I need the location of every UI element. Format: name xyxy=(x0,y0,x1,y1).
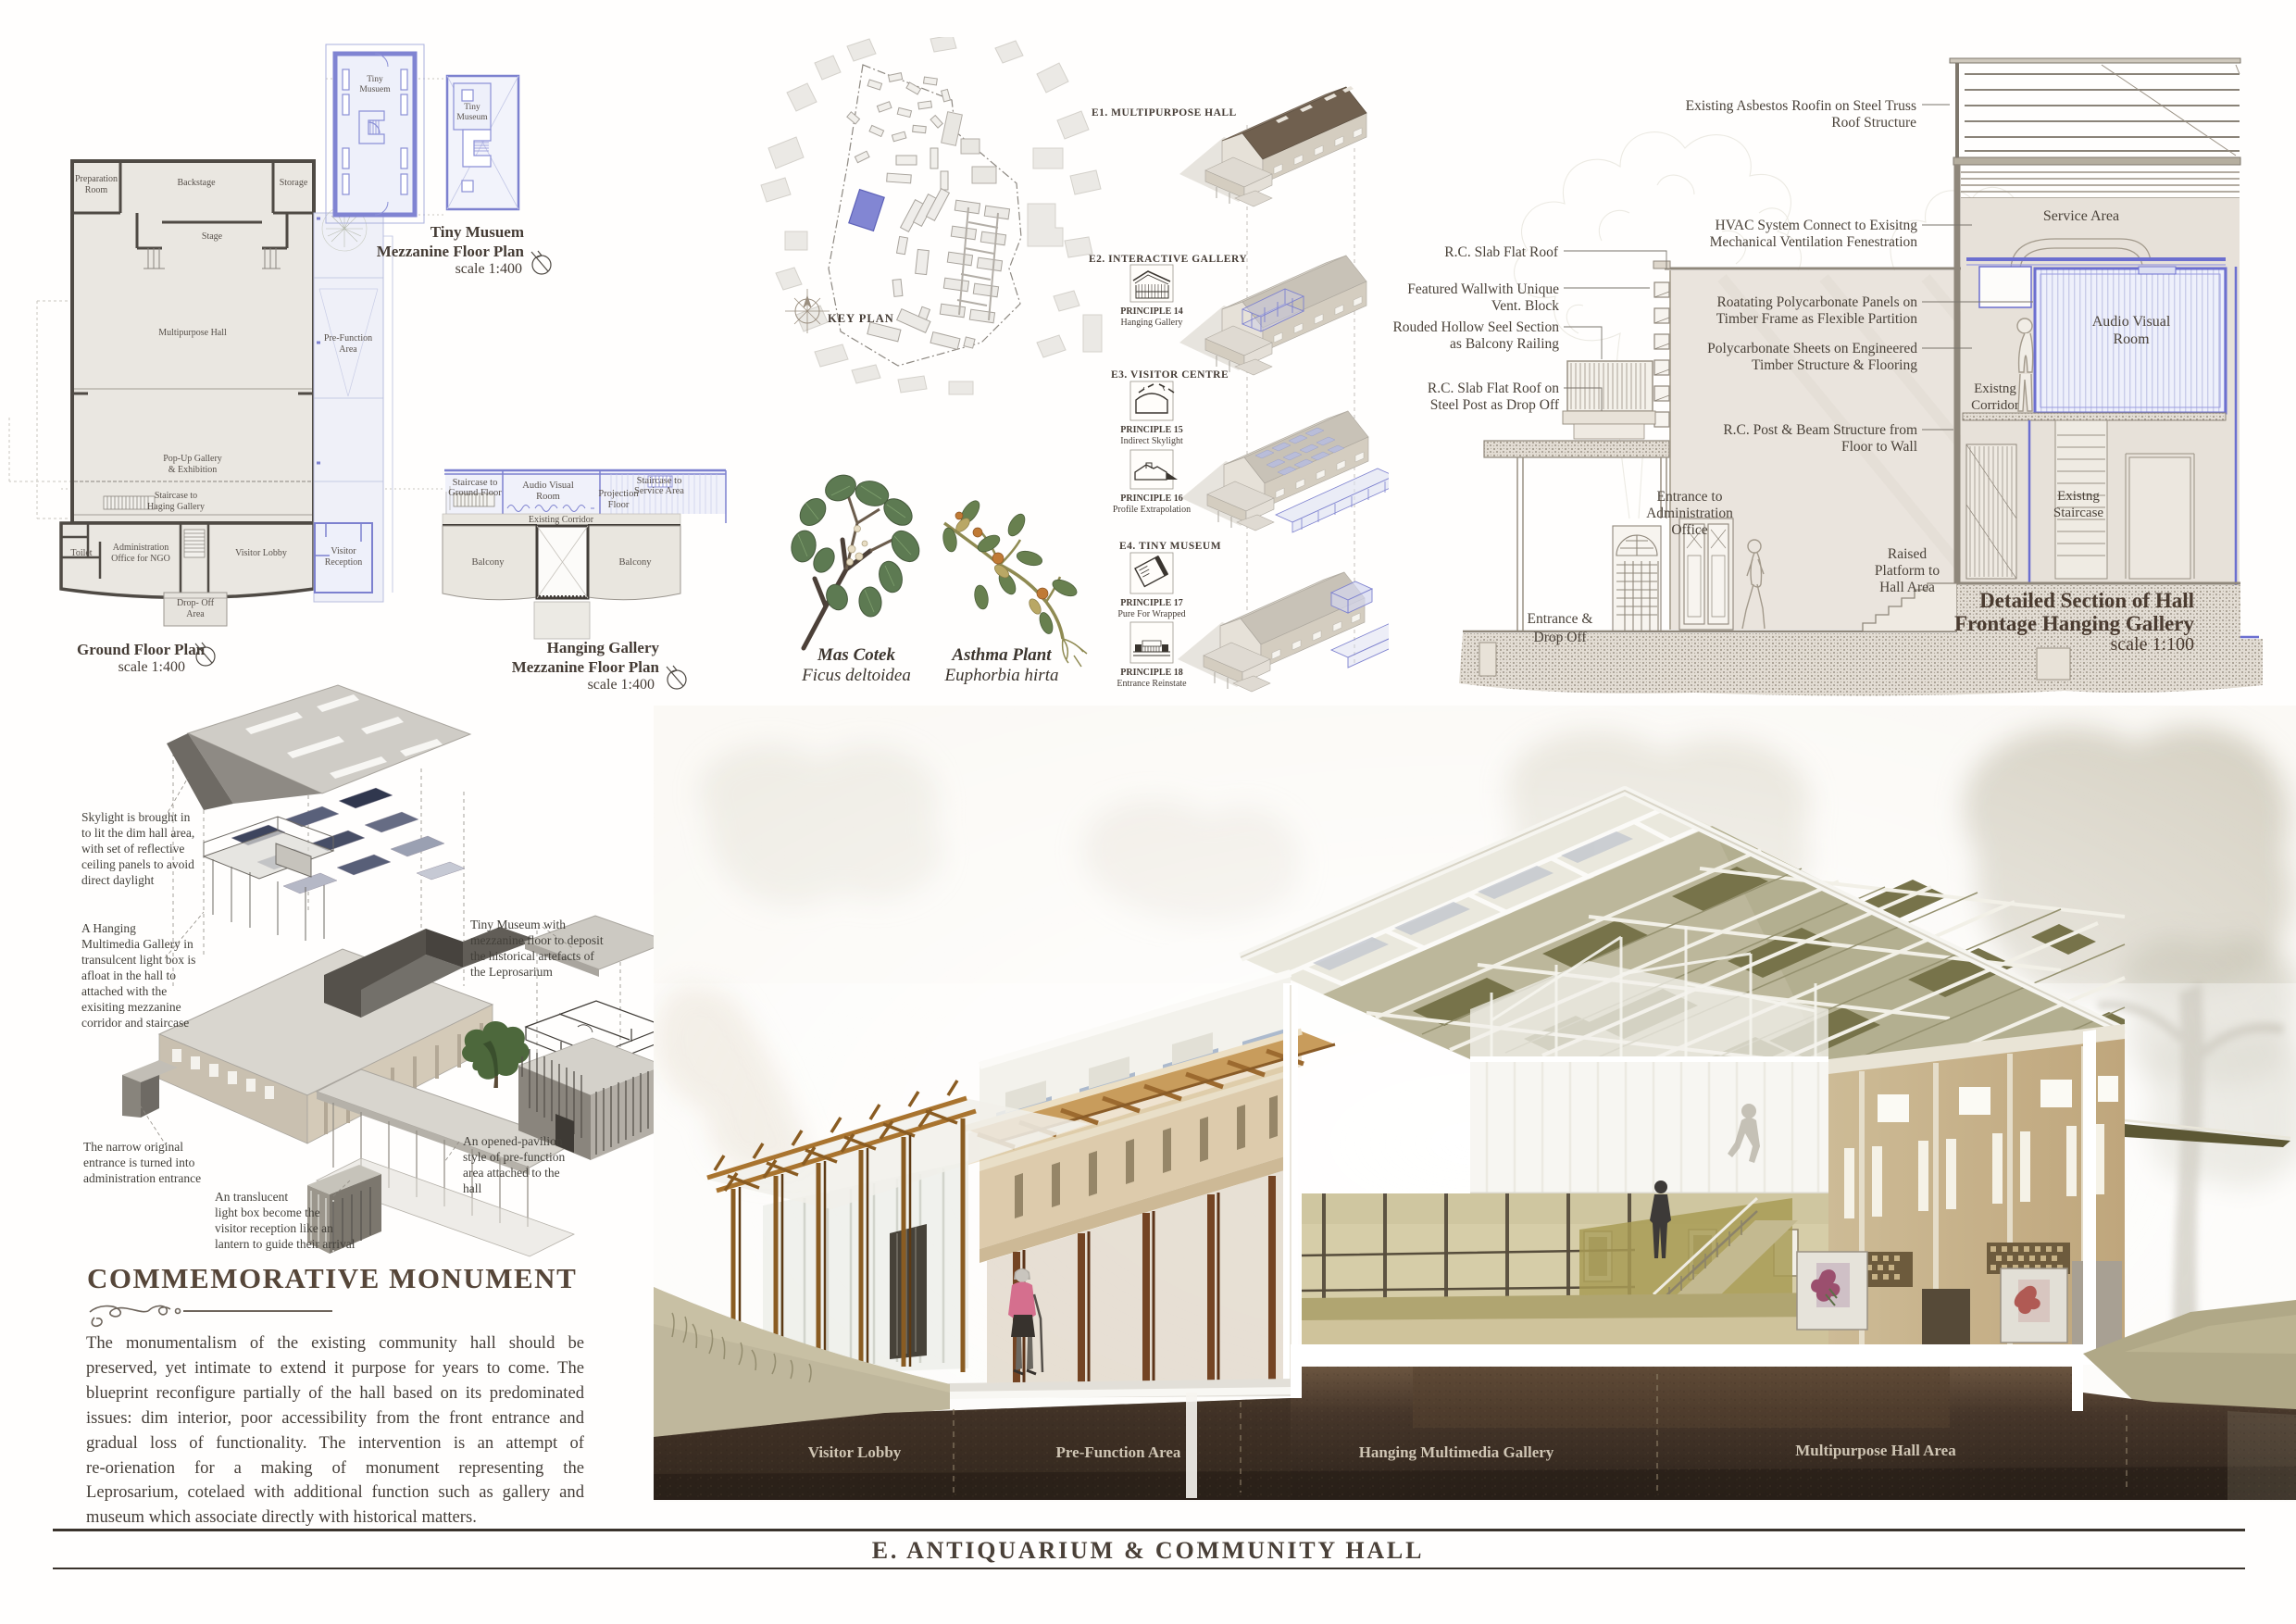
svg-text:Timber Frame as Flexible Parti: Timber Frame as Flexible Partition xyxy=(1716,311,1918,327)
svg-text:Multipurpose Hall: Multipurpose Hall xyxy=(158,328,227,338)
svg-text:Staircase to: Staircase to xyxy=(637,476,682,486)
svg-text:Multipurpose Hall Area: Multipurpose Hall Area xyxy=(1795,1442,1956,1459)
svg-text:Room: Room xyxy=(2113,331,2150,347)
svg-text:Hanging Multimedia Gallery: Hanging Multimedia Gallery xyxy=(1359,1443,1554,1461)
svg-text:Floor: Floor xyxy=(608,500,630,510)
svg-text:Indirect Skylight: Indirect Skylight xyxy=(1120,436,1183,446)
svg-text:Polycarbonate Sheets on Engine: Polycarbonate Sheets on Engineered xyxy=(1707,341,1917,356)
svg-text:scale 1:100: scale 1:100 xyxy=(2110,634,2194,655)
svg-text:Service Area: Service Area xyxy=(634,486,684,496)
svg-text:Mas Cotek: Mas Cotek xyxy=(817,645,895,665)
svg-text:Drop- Off: Drop- Off xyxy=(177,598,215,608)
svg-text:Entrance Reinstate: Entrance Reinstate xyxy=(1117,679,1187,689)
svg-text:Hanging Gallery: Hanging Gallery xyxy=(1121,318,1183,328)
svg-text:An translucent: An translucent xyxy=(215,1190,288,1204)
svg-text:Visitor Lobby: Visitor Lobby xyxy=(808,1443,902,1461)
svg-text:Hall Area: Hall Area xyxy=(1879,580,1935,595)
svg-text:to lit the dim hall area,: to lit the dim hall area, xyxy=(81,826,194,840)
svg-text:& Exhibition: & Exhibition xyxy=(168,465,218,475)
svg-text:Musuem: Musuem xyxy=(359,85,391,94)
svg-text:R.C. Post & Beam Structure fro: R.C. Post & Beam Structure from xyxy=(1723,422,1917,438)
svg-text:Featured Wallwith Unique: Featured Wallwith Unique xyxy=(1407,281,1559,297)
svg-text:Vent. Block: Vent. Block xyxy=(1491,298,1559,314)
svg-text:Euphorbia hirta: Euphorbia hirta xyxy=(944,666,1059,685)
svg-text:Area: Area xyxy=(186,609,205,619)
svg-text:Corridor: Corridor xyxy=(1971,398,2019,413)
svg-text:Visitor: Visitor xyxy=(331,546,356,556)
svg-text:Skylight is brought in: Skylight is brought in xyxy=(81,810,191,824)
svg-text:scale 1:400: scale 1:400 xyxy=(455,261,522,277)
svg-text:Audio Visual: Audio Visual xyxy=(2092,314,2171,330)
svg-text:the Leprosarium: the Leprosarium xyxy=(470,965,553,979)
svg-text:Toilet: Toilet xyxy=(70,548,92,558)
svg-text:lantern to guide their arrival: lantern to guide their arrival xyxy=(215,1237,356,1251)
svg-text:R.C. Slab Flat Roof: R.C. Slab Flat Roof xyxy=(1444,244,1559,260)
svg-text:Asthma Plant: Asthma Plant xyxy=(951,645,1052,665)
svg-text:Platform to: Platform to xyxy=(1875,563,1940,579)
svg-text:Pre-Function Area: Pre-Function Area xyxy=(1056,1443,1181,1461)
svg-text:PRINCIPLE 14: PRINCIPLE 14 xyxy=(1120,306,1183,317)
svg-text:Detailed Section of Hall: Detailed Section of Hall xyxy=(1979,589,2194,612)
svg-text:area attached to the: area attached to the xyxy=(463,1166,560,1180)
svg-text:An opened-pavilion: An opened-pavilion xyxy=(463,1134,563,1148)
svg-text:Tiny: Tiny xyxy=(464,103,480,112)
svg-text:Balcony: Balcony xyxy=(619,557,653,568)
svg-text:Visitor Lobby: Visitor Lobby xyxy=(235,548,287,558)
svg-text:Ground Floor Plan: Ground Floor Plan xyxy=(77,641,206,658)
svg-text:Timber Structure & Flooring: Timber Structure & Flooring xyxy=(1752,357,1917,373)
svg-text:Raised: Raised xyxy=(1888,546,1927,562)
svg-text:as Balcony Railing: as Balcony Railing xyxy=(1450,336,1559,352)
svg-text:Roof Structure: Roof Structure xyxy=(1831,115,1916,131)
svg-text:hall: hall xyxy=(463,1181,481,1195)
svg-text:E4. TINY MUSEUM: E4. TINY MUSEUM xyxy=(1119,541,1221,552)
svg-text:Frontage Hanging Gallery: Frontage Hanging Gallery xyxy=(1954,612,2194,635)
svg-text:Backstage: Backstage xyxy=(177,178,216,188)
svg-text:Preparation: Preparation xyxy=(75,174,118,184)
svg-text:exisiting mezzanine: exisiting mezzanine xyxy=(81,1000,181,1014)
svg-text:style of pre-function: style of pre-function xyxy=(463,1150,565,1164)
svg-text:Profile Extrapolation: Profile Extrapolation xyxy=(1113,505,1191,515)
svg-text:Stage: Stage xyxy=(202,231,223,242)
svg-text:E1. MULTIPURPOSE HALL: E1. MULTIPURPOSE HALL xyxy=(1092,107,1237,119)
svg-text:corridor and staircase: corridor and staircase xyxy=(81,1016,189,1030)
svg-text:Room: Room xyxy=(85,185,108,195)
svg-text:Tiny Museum with: Tiny Museum with xyxy=(470,918,566,931)
svg-text:Balcony: Balcony xyxy=(472,557,505,568)
svg-text:Existng: Existng xyxy=(2057,489,2100,504)
svg-text:Ficus deltoidea: Ficus deltoidea xyxy=(801,666,911,685)
svg-text:E2. INTERACTIVE GALLERY: E2. INTERACTIVE GALLERY xyxy=(1089,254,1247,265)
svg-text:with set of reflective: with set of reflective xyxy=(81,842,184,856)
svg-text:visitor reception like an: visitor reception like an xyxy=(215,1221,333,1235)
svg-text:attached with the: attached with the xyxy=(81,984,167,998)
svg-text:Area: Area xyxy=(339,344,357,355)
svg-text:The narrow original: The narrow original xyxy=(83,1140,183,1154)
svg-text:HVAC System Connect to Exisitn: HVAC System Connect to Exisitng xyxy=(1716,218,1918,233)
svg-text:Tiny: Tiny xyxy=(367,75,383,84)
svg-text:E3. VISITOR CENTRE: E3. VISITOR CENTRE xyxy=(1111,369,1229,381)
svg-text:KEY PLAN: KEY PLAN xyxy=(828,312,894,325)
svg-text:administration entrance: administration entrance xyxy=(83,1171,201,1185)
svg-text:R.C. Slab Flat Roof on: R.C. Slab Flat Roof on xyxy=(1428,381,1559,396)
svg-text:Staircase to: Staircase to xyxy=(155,491,197,501)
svg-text:A Hanging: A Hanging xyxy=(81,921,136,935)
svg-text:mezzanine floor to deposit: mezzanine floor to deposit xyxy=(470,933,604,947)
svg-text:Administration: Administration xyxy=(1646,506,1733,521)
svg-text:Audio Visual: Audio Visual xyxy=(522,481,574,491)
svg-text:entrance is turned into: entrance is turned into xyxy=(83,1156,195,1169)
svg-text:afloat in the hall to: afloat in the hall to xyxy=(81,968,176,982)
svg-text:Entrance &: Entrance & xyxy=(1527,611,1592,627)
svg-text:Office: Office xyxy=(1671,522,1707,538)
svg-text:Staircase to: Staircase to xyxy=(453,478,498,488)
svg-text:Existing Asbestos Roofin on St: Existing Asbestos Roofin on Steel Truss xyxy=(1686,98,1916,114)
svg-text:Haging Gallery: Haging Gallery xyxy=(147,502,205,512)
svg-text:Projection: Projection xyxy=(598,489,639,499)
svg-text:Floor to Wall: Floor to Wall xyxy=(1841,439,1917,455)
svg-text:Steel Post as Drop Off: Steel Post as Drop Off xyxy=(1430,397,1560,413)
svg-text:Museum: Museum xyxy=(456,113,488,122)
svg-text:Reception: Reception xyxy=(325,557,363,568)
svg-text:Multimedia Gallery in: Multimedia Gallery in xyxy=(81,937,193,951)
svg-text:Existng: Existng xyxy=(1974,381,2016,396)
svg-text:PRINCIPLE 16: PRINCIPLE 16 xyxy=(1120,493,1183,504)
svg-text:Ground Floor: Ground Floor xyxy=(448,488,502,498)
svg-text:Existing Corridor: Existing Corridor xyxy=(529,515,594,525)
svg-text:transulcent light box is: transulcent light box is xyxy=(81,953,195,967)
svg-text:PRINCIPLE 17: PRINCIPLE 17 xyxy=(1120,598,1183,608)
svg-text:Rouded Hollow Seel Section: Rouded Hollow Seel Section xyxy=(1392,319,1559,335)
svg-text:Office for NGO: Office for NGO xyxy=(111,554,170,564)
svg-text:direct daylight: direct daylight xyxy=(81,873,155,887)
svg-text:Entrance to: Entrance to xyxy=(1656,489,1722,505)
svg-text:Mezzanine Floor Plan: Mezzanine Floor Plan xyxy=(377,243,525,260)
svg-text:Storage: Storage xyxy=(280,178,308,188)
svg-text:Pre-Function: Pre-Function xyxy=(324,333,372,344)
svg-text:Pure For Wrapped: Pure For Wrapped xyxy=(1117,609,1185,619)
svg-text:the historical artefacts of: the historical artefacts of xyxy=(470,949,594,963)
svg-text:Hanging Gallery: Hanging Gallery xyxy=(547,639,660,656)
svg-text:Administration: Administration xyxy=(113,543,169,553)
svg-text:scale 1:400: scale 1:400 xyxy=(119,659,185,675)
svg-text:Drop Off: Drop Off xyxy=(1534,630,1588,645)
svg-text:Roatating Polycarbonate Panels: Roatating Polycarbonate Panels on xyxy=(1716,294,1917,310)
svg-text:Mezzanine Floor Plan: Mezzanine Floor Plan xyxy=(512,658,660,676)
svg-text:Service Area: Service Area xyxy=(2043,208,2119,224)
svg-text:Staircase: Staircase xyxy=(2053,506,2103,520)
svg-text:ceiling panels to avoid: ceiling panels to avoid xyxy=(81,857,194,871)
svg-text:Mechanical Ventilation Fenestr: Mechanical Ventilation Fenestration xyxy=(1710,234,1918,250)
svg-text:Pop-Up Gallery: Pop-Up Gallery xyxy=(163,454,222,464)
svg-text:Room: Room xyxy=(536,492,560,502)
svg-text:PRINCIPLE 18: PRINCIPLE 18 xyxy=(1120,668,1183,678)
svg-text:PRINCIPLE 15: PRINCIPLE 15 xyxy=(1120,425,1183,435)
svg-text:light box become the: light box become the xyxy=(215,1206,320,1219)
svg-text:Tiny Musuem: Tiny Musuem xyxy=(430,223,524,241)
